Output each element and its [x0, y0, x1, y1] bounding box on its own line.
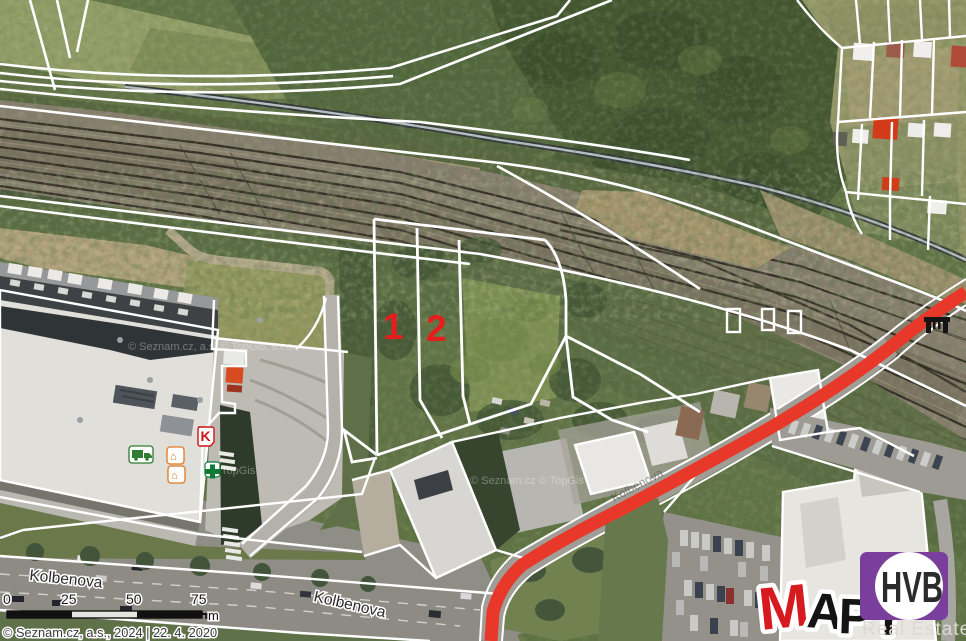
- svg-text:2: 2: [426, 308, 447, 349]
- svg-text:© Seznam.cz, a.s. © TopGis, s.: © Seznam.cz, a.s. © TopGis, s.r.o.: [128, 341, 296, 353]
- svg-text:25: 25: [61, 591, 77, 607]
- svg-text:© Seznam.cz, a.s., 2024 | 22.: © Seznam.cz, a.s., 2024 | 22. 4. 2020: [3, 625, 217, 640]
- svg-text:m: m: [208, 608, 219, 623]
- svg-text:0: 0: [3, 591, 11, 607]
- svg-text:K: K: [201, 428, 211, 444]
- svg-text:© Seznam.cz © TopGis: © Seznam.cz © TopGis: [470, 475, 584, 487]
- svg-text:M: M: [755, 571, 812, 641]
- svg-text:1: 1: [383, 306, 404, 347]
- svg-text:⌂: ⌂: [170, 451, 177, 463]
- svg-text:50: 50: [126, 591, 142, 607]
- svg-text:75: 75: [191, 591, 207, 607]
- svg-text:⌂: ⌂: [171, 470, 178, 482]
- svg-text:HVB: HVB: [881, 563, 943, 612]
- svg-text:Real Estate: Real Estate: [862, 619, 966, 640]
